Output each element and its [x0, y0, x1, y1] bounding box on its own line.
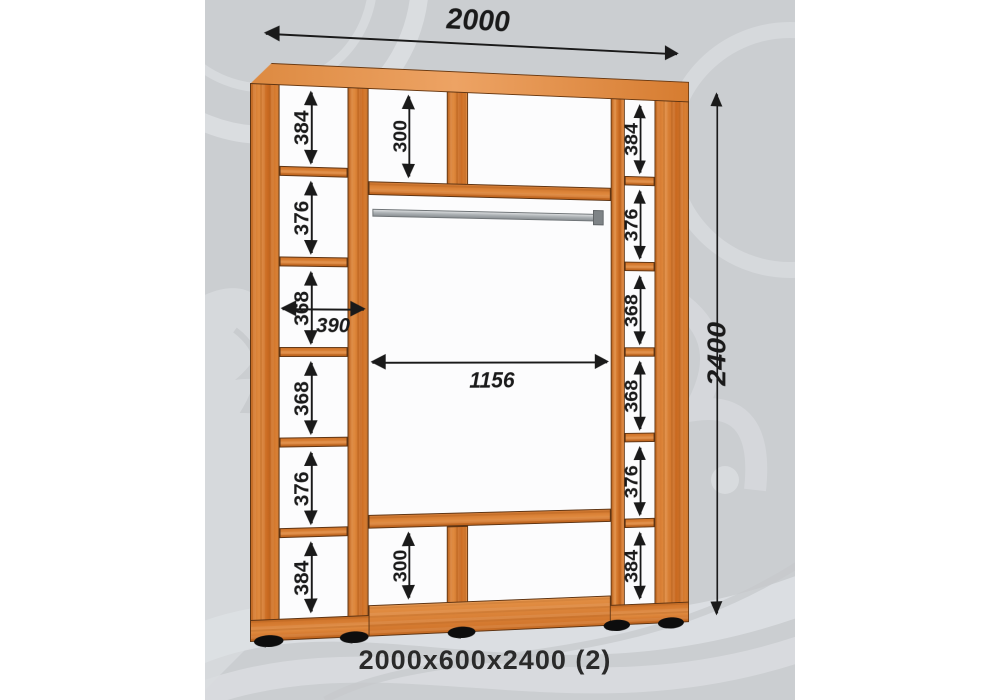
arrow-down-icon [304, 598, 318, 613]
right-shelf [625, 262, 655, 272]
left-shelf [280, 256, 348, 267]
dim-label: 376 [622, 208, 643, 241]
dim-left-cell-2: 376 [311, 183, 313, 253]
dim-label: 384 [291, 110, 314, 146]
left-shelf [280, 526, 348, 538]
arrow-down-icon [634, 586, 646, 601]
dim-label: 384 [622, 122, 643, 156]
arrow-down-icon [634, 502, 646, 516]
arrow-up-icon [304, 451, 318, 466]
dim-bottom-section: 300 [408, 533, 410, 597]
dim-label: 300 [391, 549, 413, 582]
rod-bracket [593, 210, 604, 225]
dim-label: 384 [291, 560, 314, 596]
right-partition-panel [611, 98, 625, 606]
arrow-up-icon [304, 90, 318, 105]
arrow-left-icon [281, 300, 297, 316]
right-shelf [625, 518, 655, 528]
arrow-up-icon [634, 360, 646, 374]
dim-right-cell-5: 376 [640, 448, 642, 515]
dim-label: 376 [291, 471, 314, 506]
arrow-right-icon [665, 45, 679, 61]
dim-right-cell-4: 368 [640, 362, 642, 429]
arrow-up-icon [634, 446, 646, 460]
dim-right-cell-1: 384 [640, 106, 642, 173]
dim-label: 376 [622, 465, 643, 498]
size-caption: 2000x600x2400 (2) [235, 645, 735, 676]
dim-label: 390 [316, 314, 350, 338]
arrow-left-icon [370, 354, 385, 370]
arrow-up-icon [304, 541, 318, 556]
arrow-up-icon [402, 94, 415, 109]
dim-right-cell-2: 376 [640, 191, 642, 258]
arrow-up-icon [634, 531, 646, 545]
arrow-left-icon [264, 25, 280, 42]
arrow-up-icon [710, 92, 722, 106]
arrow-up-icon [634, 275, 646, 289]
dim-label: 1156 [469, 367, 514, 393]
dim-left-cell-5: 376 [311, 453, 313, 523]
arrow-up-icon [304, 180, 318, 195]
dim-label: 376 [291, 200, 314, 235]
pattern-dot-right [711, 466, 739, 494]
dim-label: 368 [622, 294, 643, 327]
arrow-down-icon [304, 240, 318, 255]
arrow-up-icon [634, 189, 646, 203]
dim-label: 300 [391, 120, 413, 153]
left-shelf [280, 437, 348, 448]
bottom-center-divider [447, 526, 468, 612]
arrow-down-icon [634, 417, 646, 431]
arrow-up-icon [304, 361, 318, 376]
arrow-down-icon [304, 420, 318, 435]
dim-label: 2000 [446, 1, 510, 39]
dim-shelf-depth: 390 [283, 308, 364, 311]
top-center-divider [447, 91, 468, 185]
dim-label: 384 [622, 549, 643, 583]
left-shelf [280, 347, 348, 357]
arrow-up-icon [304, 271, 318, 286]
left-partition-panel [348, 87, 369, 617]
arrow-down-icon [710, 601, 722, 615]
arrow-down-icon [634, 331, 646, 345]
dim-left-cell-1: 384 [311, 92, 313, 162]
arrow-down-icon [402, 164, 415, 179]
dim-right-cell-6: 384 [640, 533, 642, 598]
cabinet-left-side-panel [250, 83, 280, 642]
dim-right-cell-3: 368 [640, 277, 642, 344]
wardrobe-diagram-stage: 384 376 368 368 376 384 384 376 368 [0, 0, 1000, 700]
arrow-down-icon [304, 510, 318, 525]
right-shelf [625, 433, 655, 443]
arrow-up-icon [402, 531, 415, 546]
dim-top-section: 300 [408, 96, 410, 176]
right-shelf [625, 347, 655, 356]
left-shelf [280, 166, 348, 178]
dim-label: 2400 [701, 322, 732, 386]
arrow-up-icon [634, 104, 646, 119]
arrow-down-icon [634, 160, 646, 174]
dim-overall-height: 2400 [716, 94, 718, 613]
right-shelf [625, 176, 655, 186]
dim-label: 368 [622, 379, 643, 412]
arrow-right-icon [350, 301, 365, 317]
dim-left-cell-6: 384 [311, 543, 313, 611]
arrow-down-icon [304, 150, 318, 165]
dim-label: 368 [291, 381, 314, 416]
arrow-down-icon [634, 246, 646, 260]
arrow-down-icon [402, 585, 415, 600]
wardrobe-cabinet: 384 376 368 368 376 384 384 376 368 [250, 62, 689, 642]
arrow-right-icon [595, 354, 609, 369]
cabinet-right-side-panel [654, 100, 689, 624]
dim-left-cell-4: 368 [311, 363, 313, 433]
